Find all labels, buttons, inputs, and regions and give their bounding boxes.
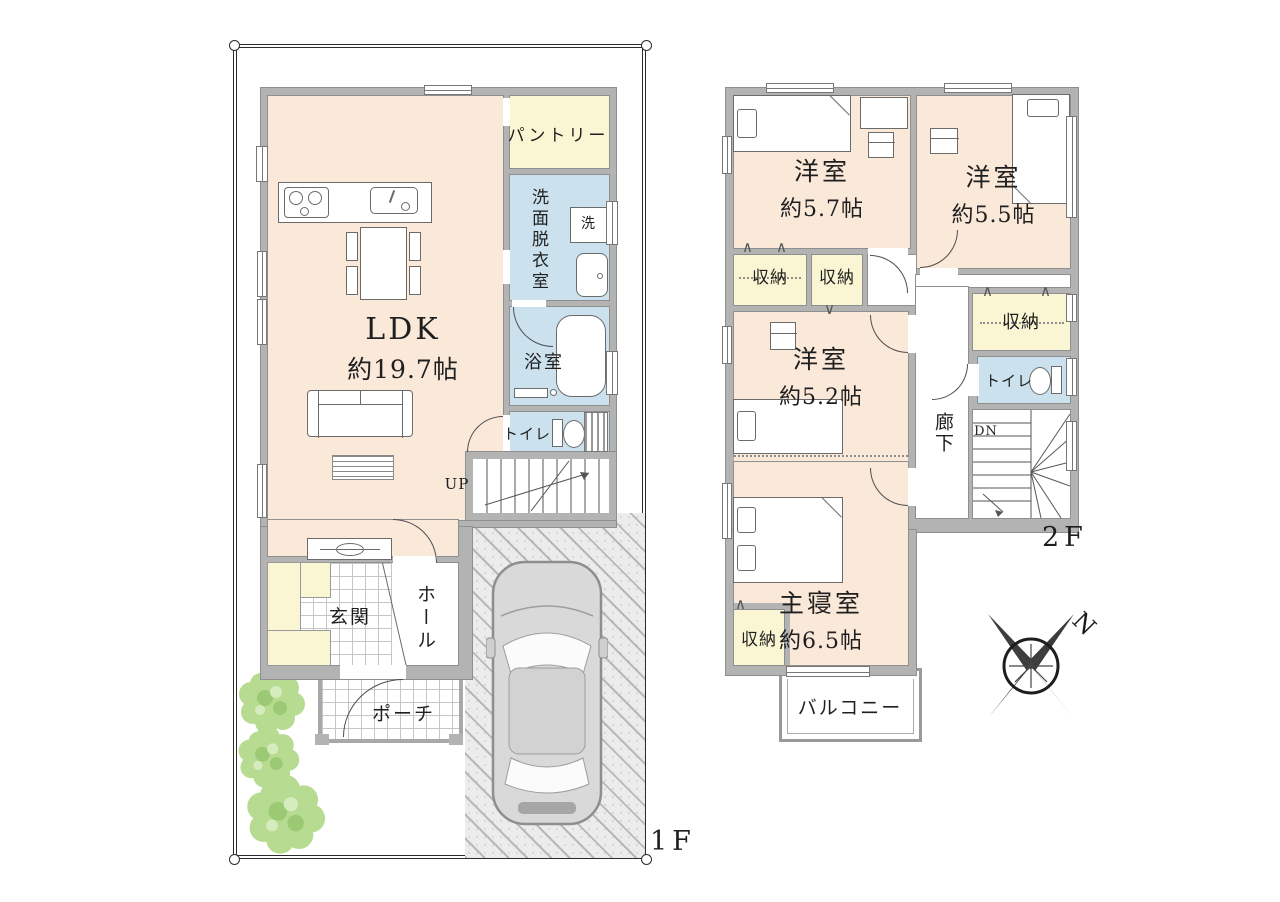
washroom-opening bbox=[503, 250, 510, 284]
pillow-icon bbox=[737, 507, 756, 533]
window bbox=[257, 251, 267, 297]
washer-label: 洗 bbox=[570, 216, 608, 233]
site-corner-marker bbox=[641, 854, 652, 865]
window bbox=[1066, 421, 1077, 471]
toilet-louver-window bbox=[584, 412, 608, 452]
window bbox=[257, 299, 267, 345]
chair bbox=[346, 232, 358, 261]
entrance-label: 玄関 bbox=[324, 606, 376, 629]
floor2-label: 2F bbox=[1042, 522, 1088, 553]
toilet-tank bbox=[1051, 366, 1062, 394]
corridor-label: 廊下 bbox=[930, 412, 957, 454]
porch-post bbox=[449, 734, 463, 745]
room-size: 約5.7帖 bbox=[734, 191, 910, 223]
porch-post bbox=[315, 734, 329, 745]
hanger-mark: ∧ bbox=[776, 238, 787, 256]
window bbox=[1066, 294, 1077, 322]
front-door-opening bbox=[340, 665, 406, 679]
shoe-cabinet bbox=[268, 631, 330, 665]
hanger-mark: ∧ bbox=[742, 238, 753, 256]
rug-icon bbox=[332, 455, 394, 480]
room-c-label: 洋室 約5.2帖 bbox=[734, 340, 908, 411]
floorplan-canvas: LDK 約19.7帖 パントリー 洗面脱衣室 洗 浴室 トイレ UP 玄関 ホー… bbox=[0, 0, 1280, 902]
room-b-label: 洋室 約5.5帖 bbox=[917, 158, 1070, 229]
door-opening bbox=[908, 468, 917, 506]
pillow-icon bbox=[1027, 99, 1059, 117]
window bbox=[257, 464, 267, 518]
room-size: 約5.2帖 bbox=[734, 379, 908, 411]
chair bbox=[346, 266, 358, 295]
hanger-mark: ∧ bbox=[982, 282, 993, 300]
storage-label: 収納 bbox=[988, 312, 1054, 334]
room-name: 洋室 bbox=[734, 340, 908, 376]
hall-label: ホール bbox=[412, 584, 439, 653]
kitchen-sink-icon bbox=[370, 187, 418, 214]
ldk-label: LDK 約19.7帖 bbox=[320, 312, 486, 386]
room-name: 洋室 bbox=[917, 158, 1070, 194]
window bbox=[1066, 358, 1077, 396]
compass-north-label: N bbox=[1067, 606, 1102, 641]
stairs-up-1f bbox=[466, 452, 616, 520]
window bbox=[722, 326, 732, 364]
balcony-label: バルコニー bbox=[790, 697, 910, 720]
window bbox=[424, 85, 472, 95]
window bbox=[722, 136, 732, 174]
car-icon bbox=[486, 550, 608, 836]
shower-icon bbox=[550, 389, 557, 396]
toilet-1f-label: トイレ bbox=[498, 425, 556, 443]
bath-label: 浴室 bbox=[506, 352, 582, 374]
room-name: 洋室 bbox=[734, 152, 910, 188]
pillow-icon bbox=[737, 109, 757, 138]
pillow-icon bbox=[737, 545, 756, 571]
pantry-opening bbox=[503, 98, 510, 126]
room-name: LDK bbox=[320, 312, 486, 347]
chair bbox=[409, 266, 421, 295]
window bbox=[944, 83, 1012, 93]
porch-label: ポーチ bbox=[372, 703, 434, 726]
room-a-label: 洋室 約5.7帖 bbox=[734, 152, 910, 223]
pantry-label: パントリー bbox=[506, 126, 610, 146]
compass-icon: N bbox=[968, 592, 1103, 732]
washbasin-icon bbox=[576, 253, 608, 297]
site-corner-marker bbox=[641, 40, 652, 51]
window bbox=[256, 146, 268, 182]
site-corner-marker bbox=[229, 854, 240, 865]
bath-counter bbox=[514, 388, 548, 398]
room-size: 約19.7帖 bbox=[320, 350, 486, 386]
storage-label: 収納 bbox=[728, 630, 790, 650]
tv-board bbox=[307, 538, 392, 560]
stove-icon bbox=[284, 187, 329, 218]
chair bbox=[409, 232, 421, 261]
storage-label: 収納 bbox=[808, 268, 866, 288]
corridor-area bbox=[916, 287, 968, 518]
bath-door-opening bbox=[512, 300, 546, 307]
floor1-label: 1F bbox=[650, 826, 696, 857]
sofa-icon bbox=[307, 390, 413, 437]
room-size: 約5.5帖 bbox=[917, 197, 1070, 229]
kitchen-counter bbox=[278, 182, 432, 223]
balcony-door-window bbox=[786, 666, 870, 677]
toilet-bowl-icon bbox=[563, 420, 585, 448]
site-corner-marker bbox=[229, 40, 240, 51]
open-wall-dashed bbox=[734, 455, 908, 457]
toilet-2f-label: トイレ bbox=[980, 372, 1038, 390]
window bbox=[766, 83, 834, 93]
stairs-down-label: DN bbox=[971, 424, 1001, 440]
desk-icon bbox=[930, 128, 958, 154]
window bbox=[722, 483, 732, 539]
door-opening bbox=[920, 268, 958, 276]
door-opening bbox=[908, 315, 917, 353]
stairs-up-label: UP bbox=[442, 475, 472, 493]
storage-label: 収納 bbox=[738, 268, 802, 288]
window bbox=[606, 351, 618, 395]
room-name: 主寝室 bbox=[734, 584, 908, 620]
closet-box bbox=[860, 97, 908, 129]
hanger-mark: ∨ bbox=[824, 300, 835, 318]
washroom-label: 洗面脱衣室 bbox=[526, 188, 551, 293]
pillow-icon bbox=[737, 411, 756, 441]
door-opening bbox=[968, 364, 979, 396]
hanger-mark: ∧ bbox=[1040, 282, 1051, 300]
dining-table bbox=[360, 227, 407, 300]
